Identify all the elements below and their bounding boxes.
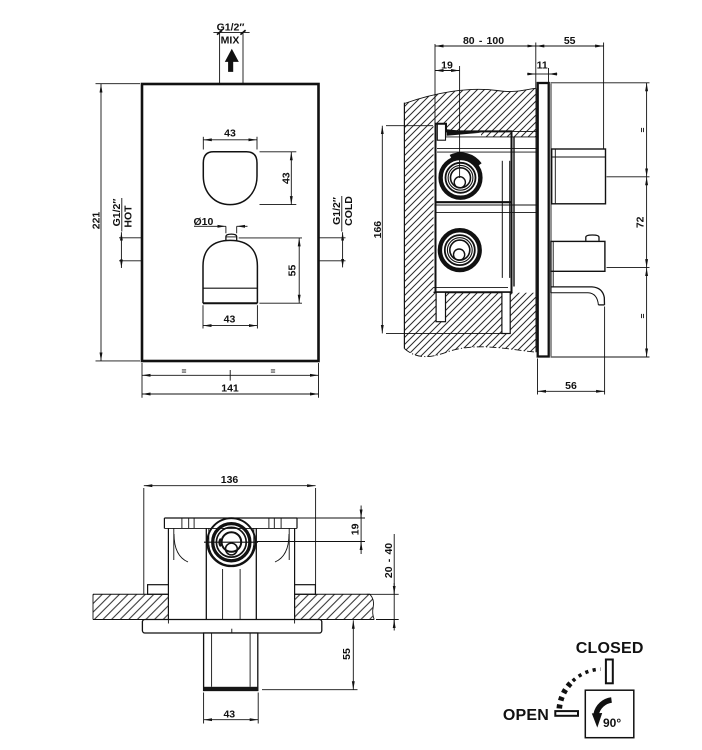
svg-text:=: = [182,366,187,376]
svg-text:=: = [638,313,648,318]
svg-text:CLOSED: CLOSED [576,640,644,657]
svg-text:43: 43 [223,709,235,721]
svg-text:=: = [271,366,276,376]
svg-text:G1/2″: G1/2″ [111,199,123,227]
svg-text:HOT: HOT [122,205,134,228]
svg-text:OPEN: OPEN [503,707,549,724]
svg-text:141: 141 [221,383,239,395]
svg-text:G1/2″: G1/2″ [331,197,343,225]
svg-text:72: 72 [635,216,647,228]
svg-text:55: 55 [341,648,353,660]
svg-text:55: 55 [286,265,298,277]
svg-text:43: 43 [224,314,236,326]
svg-text:221: 221 [91,212,103,230]
svg-text:136: 136 [221,474,239,486]
svg-text:COLD: COLD [343,196,355,226]
svg-text:=: = [638,127,648,132]
svg-text:55: 55 [564,35,576,47]
svg-text:11: 11 [537,59,548,71]
svg-text:G1/2″: G1/2″ [217,22,245,34]
svg-text:19: 19 [441,59,453,71]
svg-text:20 - 40: 20 - 40 [383,543,395,578]
svg-text:43: 43 [280,172,292,184]
svg-text:90°: 90° [603,716,621,730]
svg-text:Ø10: Ø10 [194,216,214,228]
svg-text:MIX: MIX [221,34,240,46]
svg-text:166: 166 [372,221,384,239]
svg-text:56: 56 [565,380,577,392]
svg-text:80 - 100: 80 - 100 [463,35,504,47]
svg-text:43: 43 [224,128,236,140]
svg-text:19: 19 [350,523,362,535]
